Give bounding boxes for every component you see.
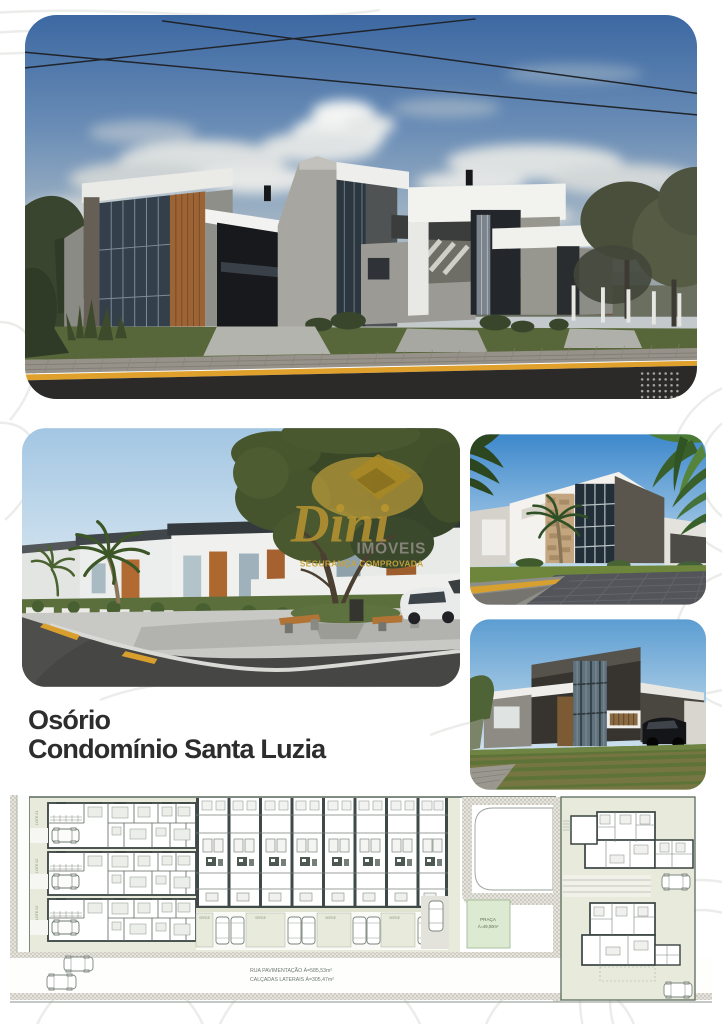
svg-text:VERDE: VERDE xyxy=(325,916,336,920)
svg-text:PRAÇA: PRAÇA xyxy=(480,917,497,922)
svg-text:VERDE: VERDE xyxy=(199,916,210,920)
svg-text:IMÓVEIS: IMÓVEIS xyxy=(356,540,426,558)
svg-text:RUA PAVIMENTAÇÃO Á=585,53m²: RUA PAVIMENTAÇÃO Á=585,53m² xyxy=(250,967,332,974)
svg-text:LOTE 01: LOTE 01 xyxy=(35,811,39,825)
svg-text:LOTE 03: LOTE 03 xyxy=(35,906,39,920)
svg-text:Á=49,00m²: Á=49,00m² xyxy=(478,924,499,929)
svg-text:VERDE: VERDE xyxy=(255,916,266,920)
svg-text:LOTE 02: LOTE 02 xyxy=(35,859,39,873)
svg-text:SEGURANÇA COMPROVADA: SEGURANÇA COMPROVADA xyxy=(300,558,424,568)
svg-text:CALÇADAS LATERAIS Á=305,47m²: CALÇADAS LATERAIS Á=305,47m² xyxy=(250,976,334,983)
svg-text:VERDE: VERDE xyxy=(389,916,400,920)
